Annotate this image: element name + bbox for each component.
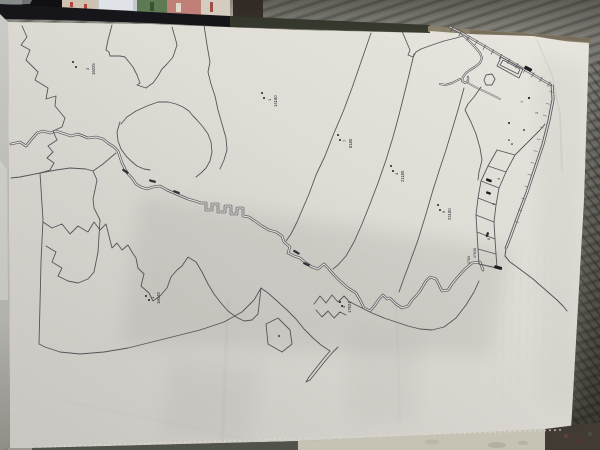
svg-text:4: 4	[497, 178, 501, 180]
svg-text:16025: 16025	[91, 63, 96, 75]
svg-text:8: 8	[487, 238, 491, 240]
svg-text:1763: 1763	[467, 256, 471, 264]
svg-text:17624: 17624	[347, 301, 352, 313]
svg-text:9: 9	[492, 203, 496, 205]
svg-text:8180: 8180	[348, 138, 353, 148]
svg-text:21180: 21180	[400, 170, 405, 182]
svg-text:2: 2	[535, 112, 539, 114]
svg-text:17635: 17635	[473, 248, 477, 258]
svg-text:16049: 16049	[156, 292, 161, 304]
svg-text:14180: 14180	[273, 95, 278, 107]
svg-text:24180: 24180	[447, 208, 452, 220]
svg-text:1: 1	[520, 101, 524, 103]
